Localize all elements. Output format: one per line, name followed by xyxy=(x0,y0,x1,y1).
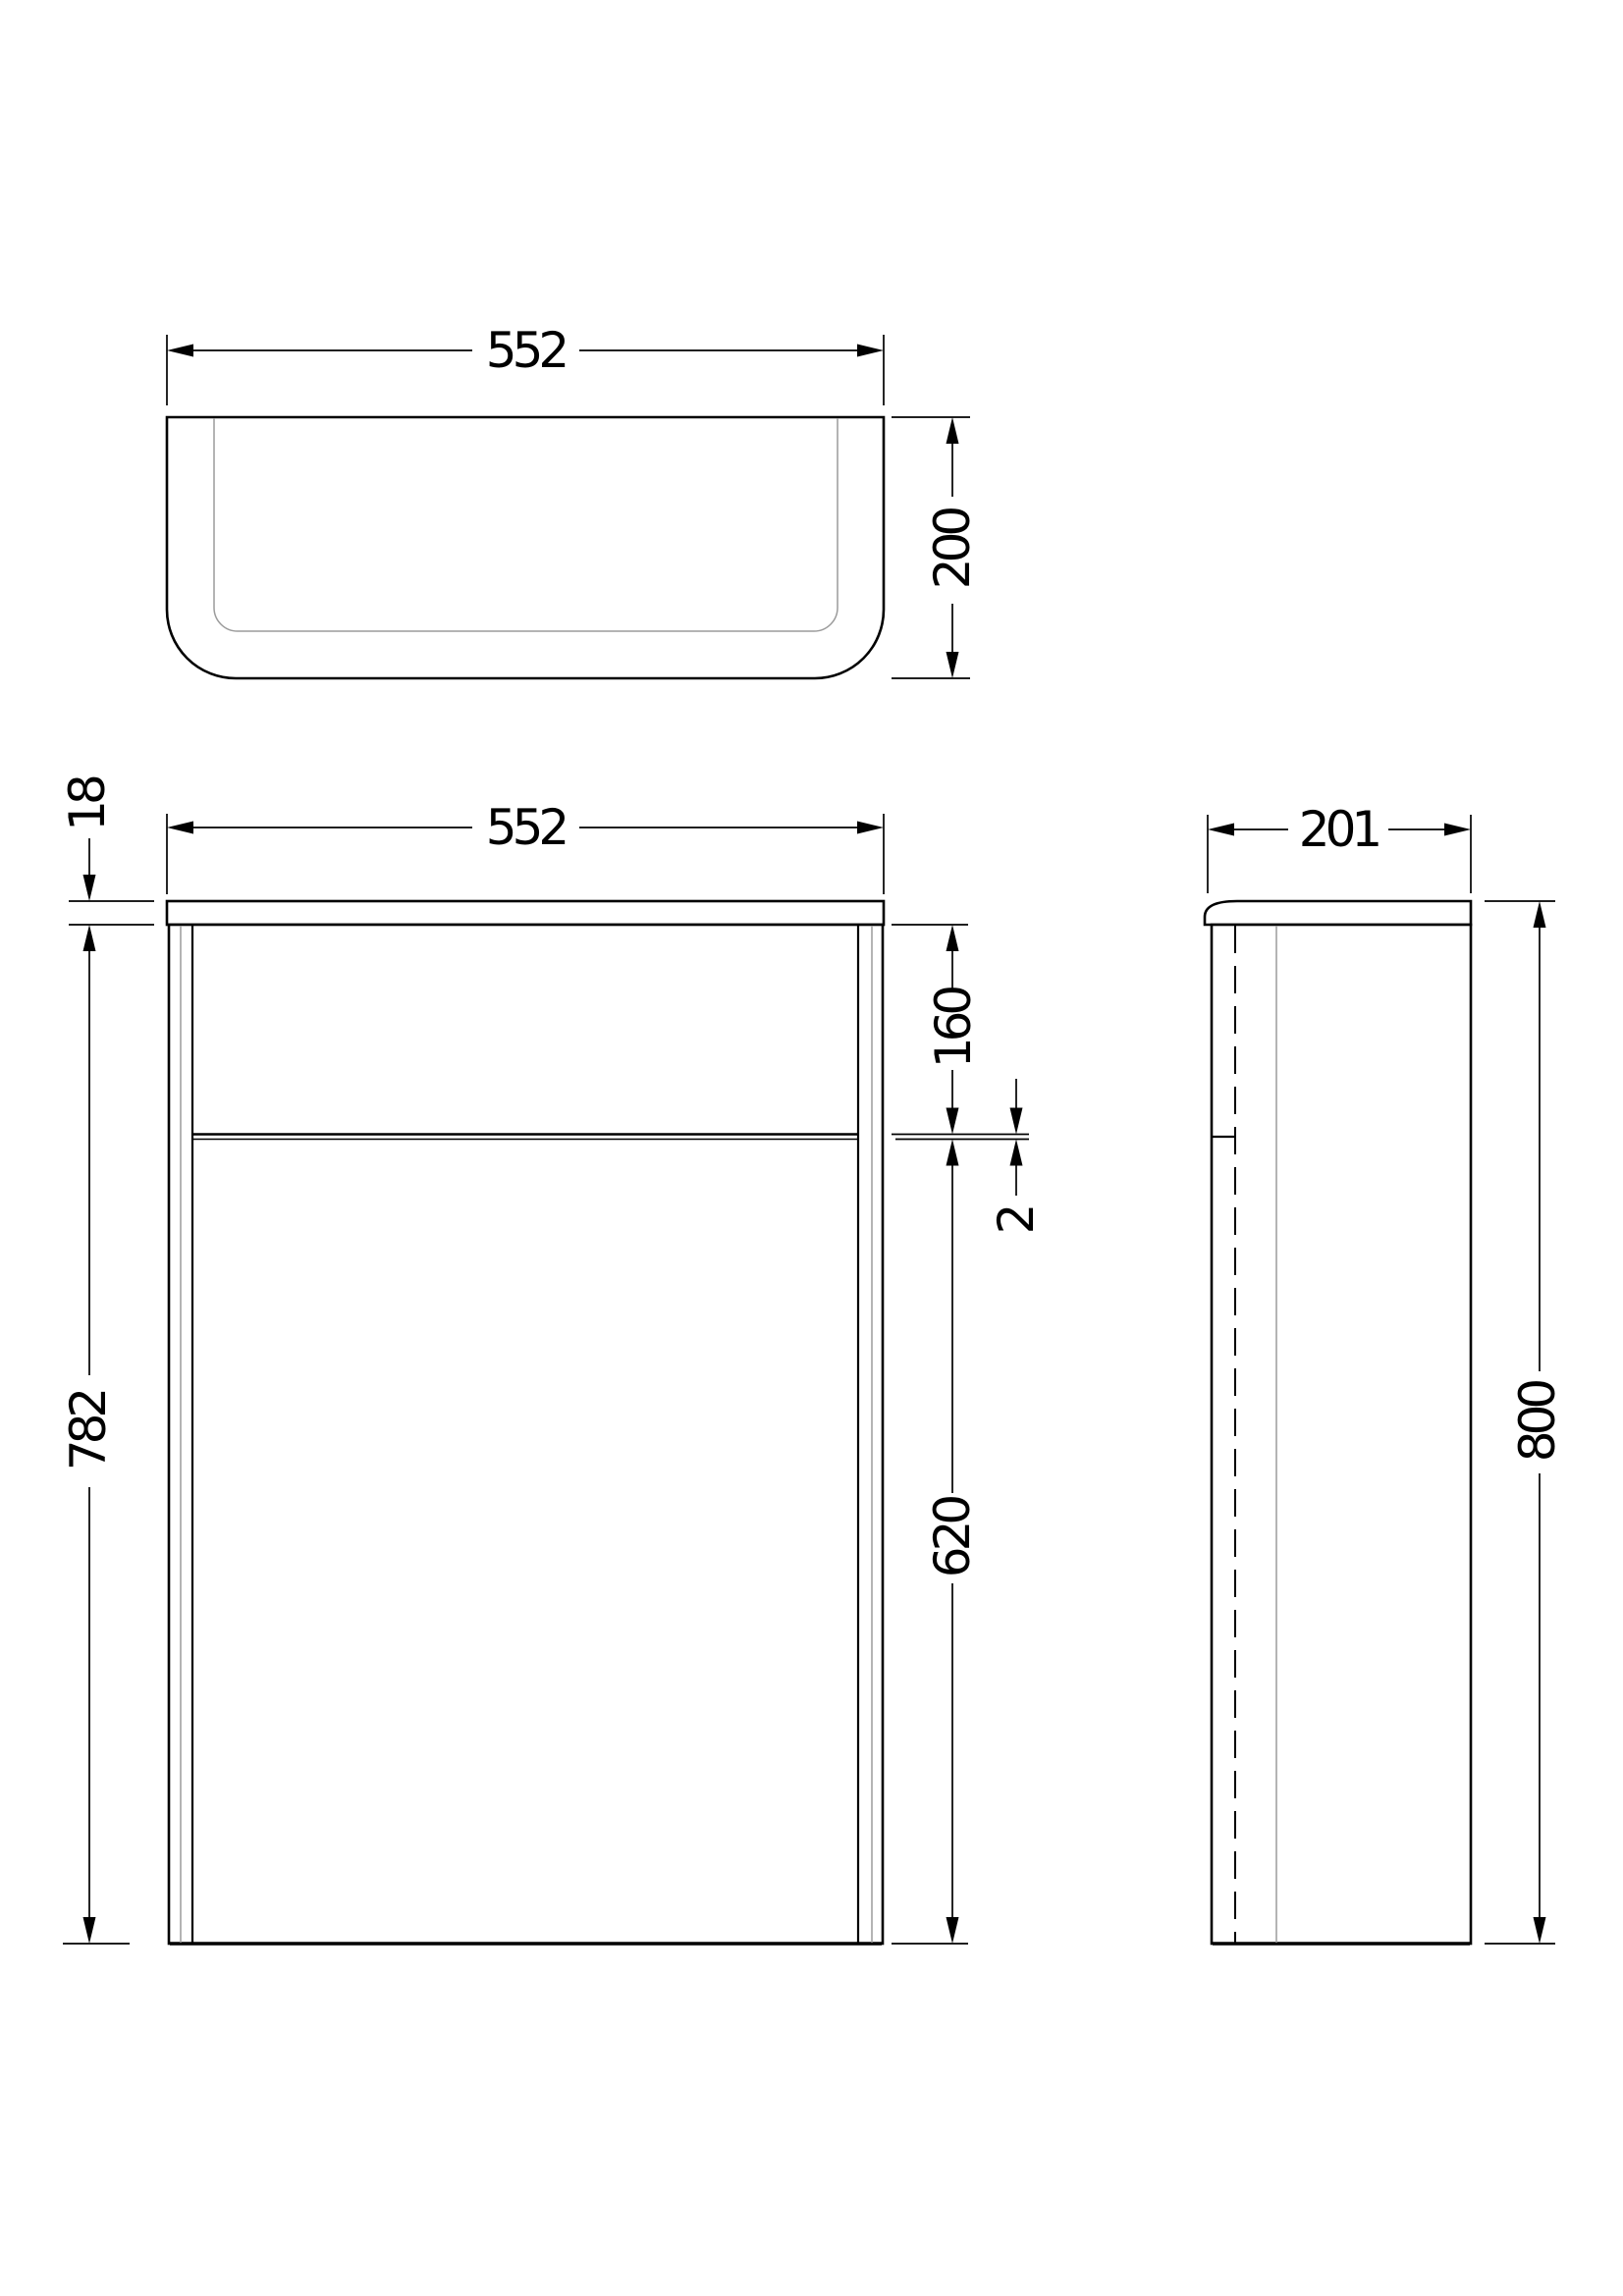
dim-shelf-thickness-arrowhead-down xyxy=(1010,1108,1023,1135)
dim-shelf-thickness: 2 xyxy=(892,1079,1045,1234)
dim-shelf-thickness-arrowhead-up xyxy=(1010,1140,1023,1166)
dim-side-height-arrowhead-down xyxy=(1534,1917,1546,1944)
side-view-worktop xyxy=(1205,901,1471,925)
dim-plan-depth-arrowhead-down xyxy=(947,652,959,678)
dim-upper-section-arrowhead-down xyxy=(947,1108,959,1135)
dim-side-depth: 201 xyxy=(1208,801,1471,893)
front-view-worktop xyxy=(167,901,884,925)
dim-plan-width-label: 552 xyxy=(486,322,566,379)
side-view-carcass xyxy=(1212,925,1471,1944)
dim-front-width-arrowhead-left xyxy=(167,822,193,834)
dim-plan-depth: 200 xyxy=(892,417,981,678)
dim-shelf-thickness-label: 2 xyxy=(988,1207,1045,1234)
dim-side-height: 800 xyxy=(1485,901,1566,1944)
front-view xyxy=(167,901,884,1944)
dim-side-height-arrowhead-up xyxy=(1534,901,1546,928)
technical-drawing: 552 200 552 18 xyxy=(0,0,1623,2296)
dim-lower-section-arrowhead-up xyxy=(947,1140,959,1166)
dim-plan-width-arrowhead-left xyxy=(167,345,193,357)
dim-side-depth-arrowhead-right xyxy=(1444,824,1471,836)
dim-worktop-thickness: 18 xyxy=(59,776,154,925)
dim-worktop-thickness-arrowhead-down xyxy=(83,875,96,901)
dim-carcass-height-arrowhead-up xyxy=(83,925,96,951)
dim-front-width-label: 552 xyxy=(486,799,566,856)
plan-view xyxy=(167,417,884,678)
dim-front-width: 552 xyxy=(167,799,884,894)
dim-lower-section: 620 xyxy=(892,1140,981,1945)
plan-view-inner-body-outline xyxy=(214,418,838,631)
side-view xyxy=(1205,901,1471,1944)
dim-plan-width-arrowhead-right xyxy=(857,345,884,357)
dim-upper-section-arrowhead-up xyxy=(947,925,959,951)
dim-carcass-height-arrowhead-down xyxy=(83,1917,96,1944)
dim-carcass-height: 782 xyxy=(60,925,130,1944)
dim-lower-section-arrowhead-down xyxy=(947,1917,959,1944)
dim-plan-width: 552 xyxy=(167,322,884,405)
dim-front-width-arrowhead-right xyxy=(857,822,884,834)
dim-side-depth-label: 201 xyxy=(1299,801,1380,858)
dim-carcass-height-label: 782 xyxy=(60,1392,117,1471)
dim-lower-section-label: 620 xyxy=(924,1497,981,1578)
dim-plan-depth-arrowhead-up xyxy=(947,417,959,444)
dim-upper-section-label: 160 xyxy=(925,988,982,1069)
dim-side-depth-arrowhead-left xyxy=(1208,824,1234,836)
plan-view-outline xyxy=(167,417,884,678)
dim-plan-depth-label: 200 xyxy=(924,508,981,590)
front-view-carcass xyxy=(169,925,883,1944)
drawing-sheet: 552 200 552 18 xyxy=(0,0,1623,2296)
dim-side-height-label: 800 xyxy=(1509,1381,1566,1463)
dim-worktop-thickness-label: 18 xyxy=(59,776,116,831)
dim-upper-section: 160 xyxy=(892,925,982,1135)
